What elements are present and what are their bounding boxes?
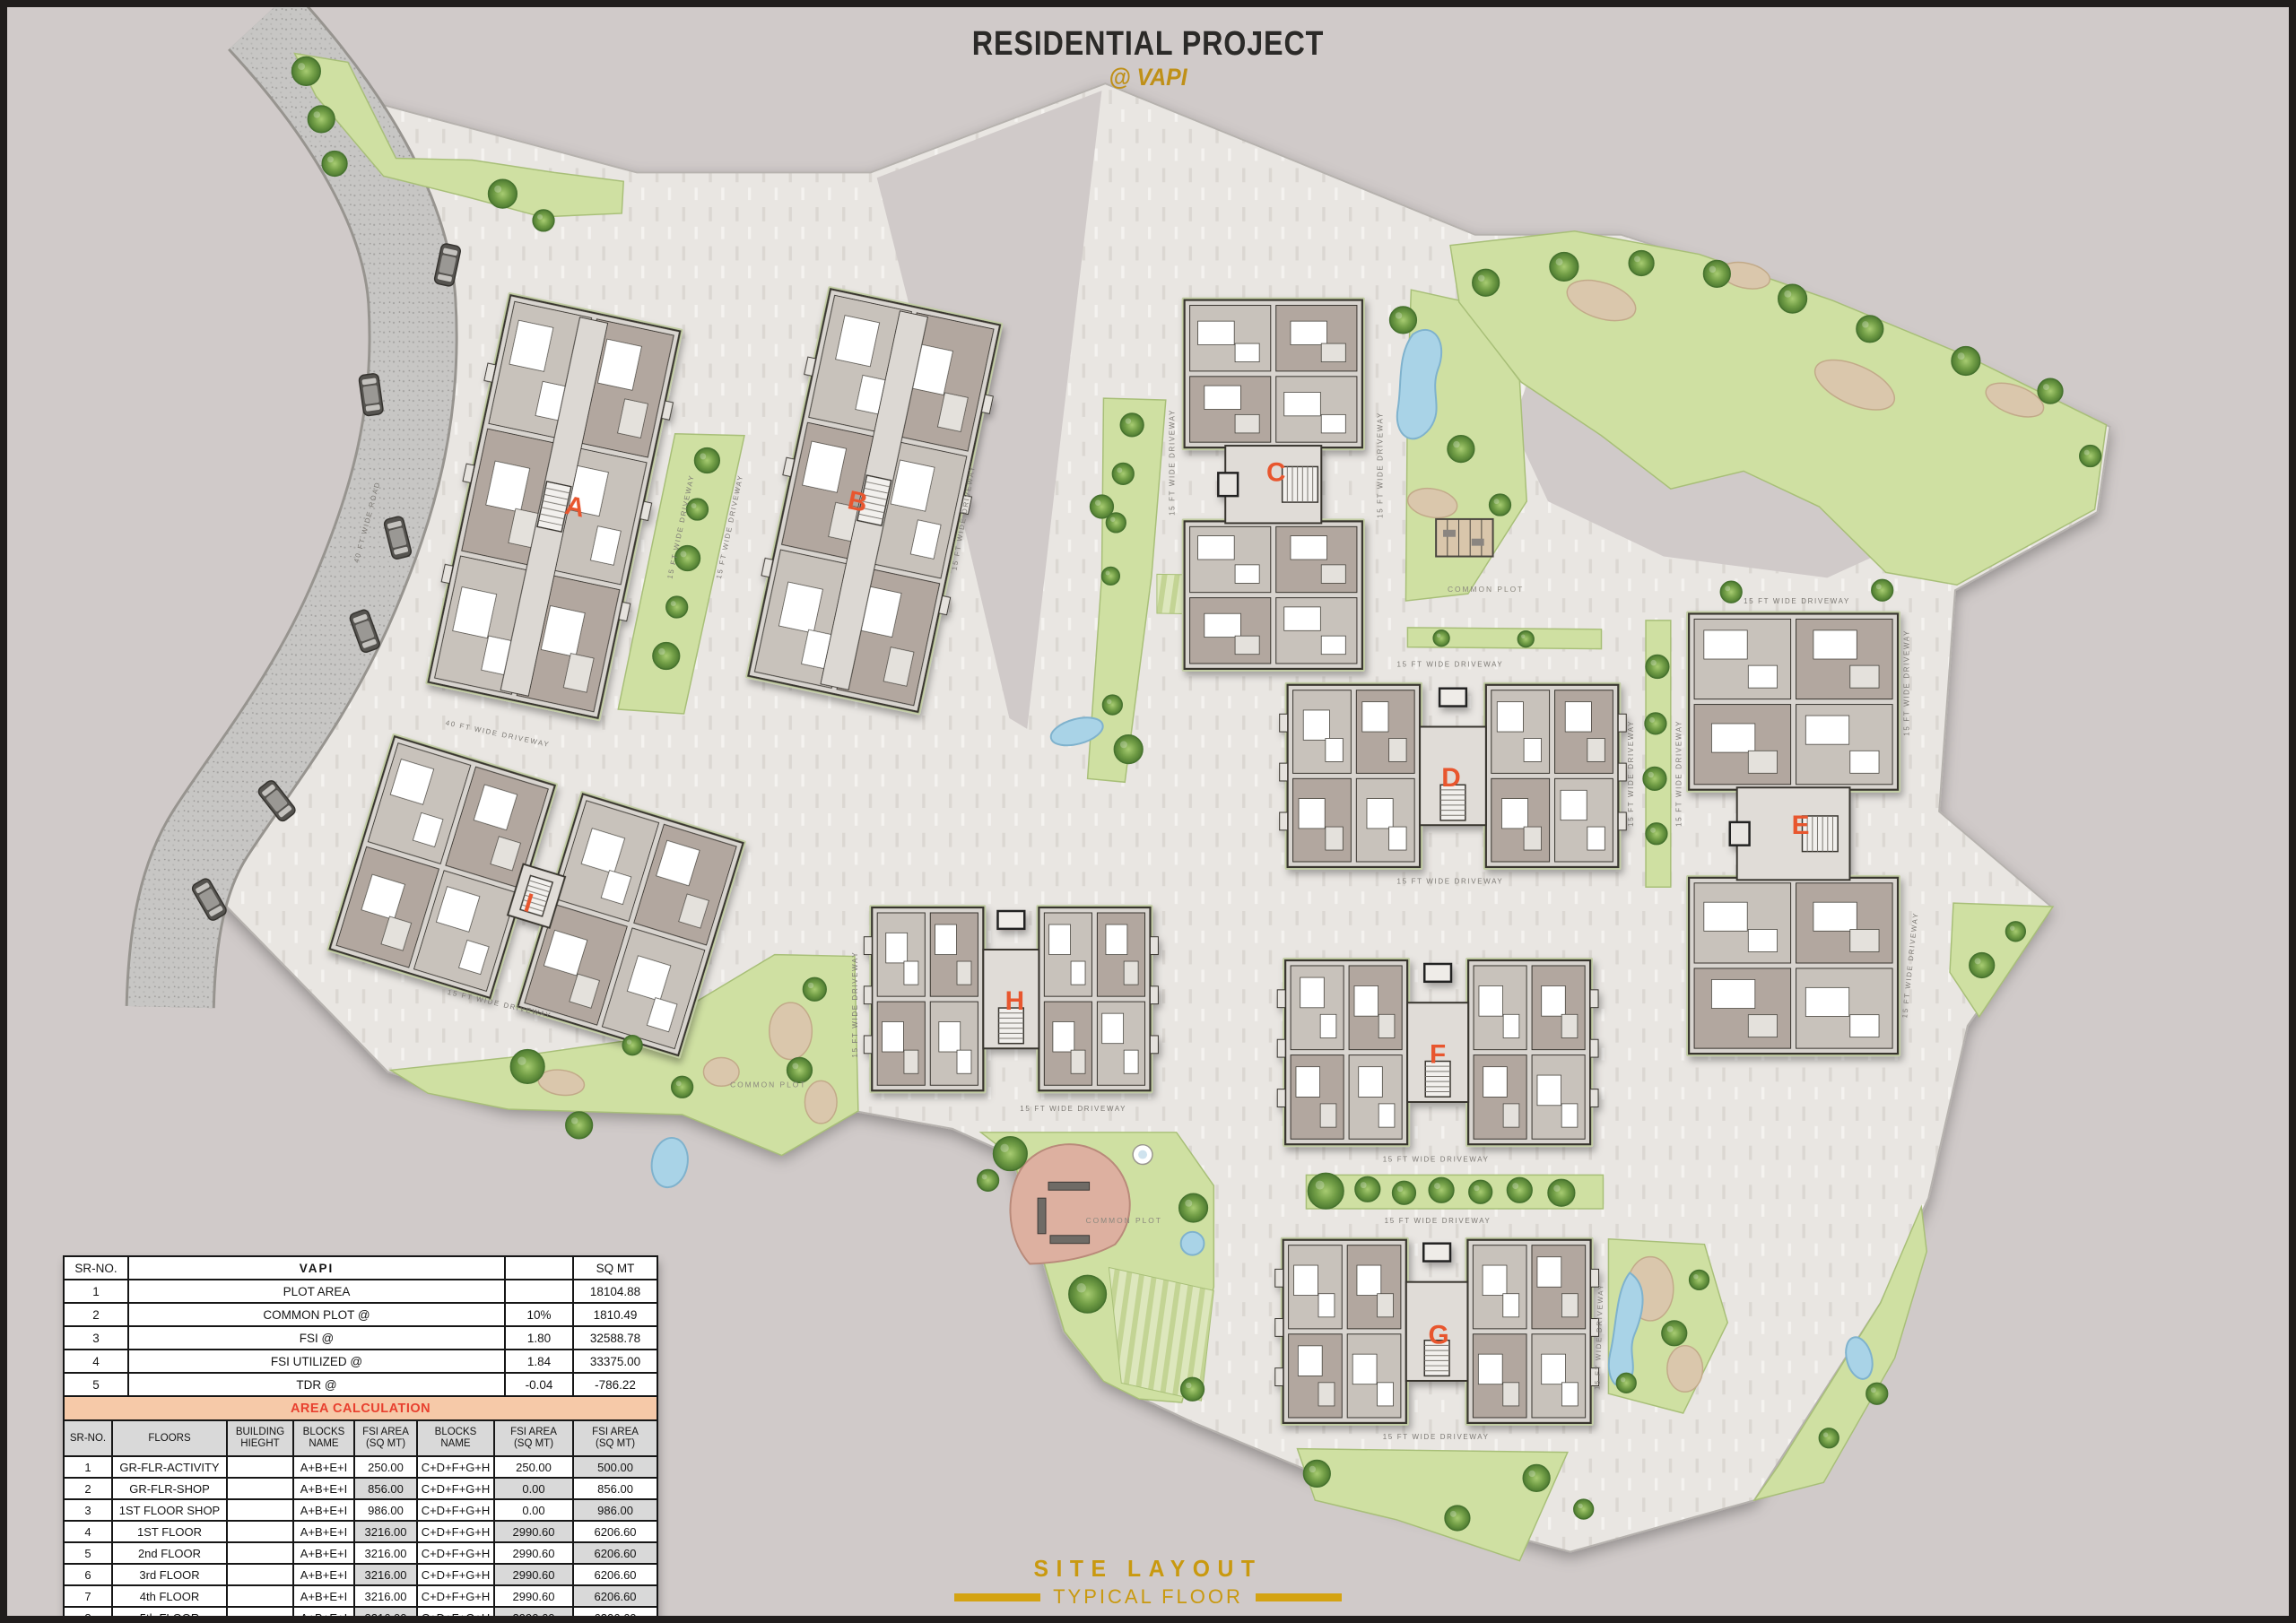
- area-row: 52nd FLOORA+B+E+I3216.00C+D+F+G+H2990.60…: [64, 1542, 657, 1564]
- tree-icon: [1548, 1179, 1575, 1206]
- tree-icon: [1720, 581, 1742, 603]
- tree-icon: [566, 1112, 593, 1139]
- area-blocks2: C+D+F+G+H: [417, 1585, 494, 1607]
- area-height: [227, 1542, 293, 1564]
- area-floor: 1ST FLOOR SHOP: [112, 1499, 227, 1521]
- area-sr: 6: [64, 1564, 112, 1585]
- area-header-row: SR-NO.FLOORSBUILDINGHIEGHTBLOCKSNAMEFSI …: [64, 1420, 657, 1456]
- tree-icon: [1690, 1270, 1709, 1289]
- summary-label: COMMON PLOT @: [128, 1303, 505, 1326]
- tree-icon: [1872, 579, 1893, 601]
- summary-header-city: VAPI: [128, 1256, 505, 1280]
- driveway-label: 15 FT WIDE DRIVEWAY: [1744, 597, 1850, 605]
- summary-row: 3FSI @1.8032588.78: [64, 1326, 657, 1350]
- summary-header-row: SR-NO.VAPISQ MT: [64, 1256, 657, 1280]
- summary-value: 33375.00: [573, 1350, 657, 1373]
- driveway-label: 15 FT WIDE DRIVEWAY: [1397, 877, 1504, 885]
- pool: [1181, 1232, 1205, 1255]
- tree-icon: [1112, 463, 1134, 484]
- tree-icon: [1952, 347, 1980, 376]
- area-blocks1: A+B+E+I: [293, 1585, 354, 1607]
- driveway-label: 15 FT WIDE DRIVEWAY: [1169, 409, 1177, 516]
- driveway-label: 15 FT WIDE DRIVEWAY: [1020, 1105, 1126, 1113]
- summary-value: 32588.78: [573, 1326, 657, 1350]
- tree-icon: [2080, 446, 2101, 467]
- summary-row: 2COMMON PLOT @10%1810.49: [64, 1303, 657, 1326]
- tree-icon: [1857, 316, 1883, 343]
- tree-icon: [1507, 1177, 1532, 1202]
- area-fsi-total: 6206.60: [573, 1585, 657, 1607]
- summary-sr: 3: [64, 1326, 128, 1350]
- gold-bar-right-icon: [1256, 1593, 1342, 1601]
- area-floor: 5th FLOOR: [112, 1607, 227, 1623]
- summary-row: 1PLOT AREA18104.88: [64, 1280, 657, 1303]
- summary-ratio: 1.80: [505, 1326, 573, 1350]
- area-blocks1: A+B+E+I: [293, 1478, 354, 1499]
- tree-icon: [1114, 735, 1143, 764]
- area-row: 2GR-FLR-SHOPA+B+E+I856.00C+D+F+G+H0.0085…: [64, 1478, 657, 1499]
- tree-icon: [1662, 1321, 1687, 1346]
- summary-header-blank: [505, 1256, 573, 1280]
- area-floor: 2nd FLOOR: [112, 1542, 227, 1564]
- tree-icon: [1393, 1181, 1416, 1204]
- tree-icon: [1616, 1373, 1636, 1393]
- area-sr: 3: [64, 1499, 112, 1521]
- tree-icon: [1574, 1499, 1594, 1519]
- area-fsi1: 250.00: [354, 1456, 417, 1478]
- area-blocks2: C+D+F+G+H: [417, 1521, 494, 1542]
- tree-icon: [1303, 1461, 1330, 1488]
- summary-sr: 2: [64, 1303, 128, 1326]
- fountain-water: [1138, 1150, 1147, 1159]
- area-fsi2: 0.00: [494, 1478, 573, 1499]
- page-subtitle: @ VAPI: [99, 64, 2197, 91]
- sand-patch: [1667, 1346, 1703, 1393]
- area-blocks2: C+D+F+G+H: [417, 1499, 494, 1521]
- tree-icon: [1469, 1180, 1492, 1203]
- tree-icon: [1970, 953, 1995, 978]
- tree-icon: [803, 977, 826, 1001]
- tree-icon: [2038, 378, 2063, 404]
- area-blocks2: C+D+F+G+H: [417, 1478, 494, 1499]
- summary-value: -786.22: [573, 1373, 657, 1396]
- green-area: [1298, 1449, 1568, 1561]
- summary-table: SR-NO.VAPISQ MT1PLOT AREA18104.882COMMON…: [63, 1255, 658, 1397]
- tree-icon: [1646, 655, 1669, 679]
- tree-icon: [1819, 1428, 1839, 1448]
- common-plot-label: COMMON PLOT: [1448, 585, 1524, 594]
- driveway-label: 15 FT WIDE DRIVEWAY: [1627, 720, 1635, 827]
- common-plot-label: COMMON PLOT: [730, 1080, 806, 1089]
- tree-icon: [622, 1036, 642, 1055]
- tree-icon: [787, 1058, 813, 1083]
- tree-icon: [510, 1050, 544, 1084]
- tree-icon: [1101, 567, 1119, 585]
- summary-label: FSI @: [128, 1326, 505, 1350]
- area-floor: 1ST FLOOR: [112, 1521, 227, 1542]
- area-blocks1: A+B+E+I: [293, 1521, 354, 1542]
- tree-icon: [1179, 1193, 1208, 1222]
- tree-icon: [1518, 631, 1534, 647]
- building-label-D: D: [1441, 763, 1460, 793]
- tree-icon: [2005, 922, 2025, 942]
- area-fsi-total: 6206.60: [573, 1564, 657, 1585]
- area-blocks2: C+D+F+G+H: [417, 1564, 494, 1585]
- area-fsi1: 3216.00: [354, 1521, 417, 1542]
- summary-value: 18104.88: [573, 1280, 657, 1303]
- area-sr: 8: [64, 1607, 112, 1623]
- summary-sr: 1: [64, 1280, 128, 1303]
- area-sr: 5: [64, 1542, 112, 1564]
- tree-icon: [1646, 823, 1667, 845]
- title-block: RESIDENTIAL PROJECT @ VAPI: [7, 25, 2289, 91]
- tree-icon: [1645, 713, 1666, 734]
- area-blocks1: A+B+E+I: [293, 1607, 354, 1623]
- area-row: 41ST FLOORA+B+E+I3216.00C+D+F+G+H2990.60…: [64, 1521, 657, 1542]
- footer-subtitle: TYPICAL FLOOR: [1053, 1585, 1243, 1609]
- sand-patch: [770, 1002, 813, 1059]
- area-fsi1: 3216.00: [354, 1542, 417, 1564]
- building-label-F: F: [1430, 1039, 1446, 1069]
- tree-icon: [1091, 495, 1114, 518]
- tree-icon: [322, 152, 347, 177]
- area-sr: 1: [64, 1456, 112, 1478]
- area-fsi-total: 500.00: [573, 1456, 657, 1478]
- summary-sr: 4: [64, 1350, 128, 1373]
- area-height: [227, 1585, 293, 1607]
- area-fsi2: 2990.60: [494, 1542, 573, 1564]
- area-fsi1: 3216.00: [354, 1564, 417, 1585]
- summary-ratio: -0.04: [505, 1373, 573, 1396]
- area-height: [227, 1478, 293, 1499]
- tree-icon: [1390, 307, 1417, 334]
- tree-icon: [1433, 630, 1449, 647]
- area-column-header: FSI AREA(SQ MT): [354, 1420, 417, 1456]
- area-height: [227, 1521, 293, 1542]
- summary-value: 1810.49: [573, 1303, 657, 1326]
- building-label-H: H: [1005, 986, 1024, 1016]
- tree-icon: [1866, 1383, 1888, 1404]
- summary-row: 4FSI UTILIZED @1.8433375.00: [64, 1350, 657, 1373]
- driveway-label: 15 FT WIDE DRIVEWAY: [1397, 660, 1504, 668]
- area-section-title: AREA CALCULATION: [64, 1396, 657, 1420]
- area-height: [227, 1607, 293, 1623]
- driveway-label: 15 FT WIDE DRIVEWAY: [1383, 1156, 1490, 1164]
- area-tables: SR-NO.VAPISQ MT1PLOT AREA18104.882COMMON…: [63, 1257, 657, 1623]
- driveway-label: 15 FT WIDE DRIVEWAY: [851, 951, 859, 1058]
- area-blocks1: A+B+E+I: [293, 1564, 354, 1585]
- area-fsi1: 856.00: [354, 1478, 417, 1499]
- tree-icon: [1181, 1377, 1205, 1401]
- tree-icon: [1429, 1177, 1454, 1202]
- building-label-E: E: [1792, 811, 1810, 840]
- area-fsi1: 3216.00: [354, 1585, 417, 1607]
- driveway-label: 15 FT WIDE DRIVEWAY: [1385, 1217, 1492, 1225]
- area-calculation-table: AREA CALCULATIONSR-NO.FLOORSBUILDINGHIEG…: [63, 1395, 658, 1623]
- gold-bar-left-icon: [954, 1593, 1040, 1601]
- area-floor: 3rd FLOOR: [112, 1564, 227, 1585]
- area-fsi-total: 6206.60: [573, 1521, 657, 1542]
- tree-icon: [1308, 1173, 1344, 1209]
- tree-icon: [1643, 767, 1666, 790]
- summary-sr: 5: [64, 1373, 128, 1396]
- area-sr: 7: [64, 1585, 112, 1607]
- area-height: [227, 1456, 293, 1478]
- driveway-label: 15 FT WIDE DRIVEWAY: [1383, 1433, 1490, 1441]
- plaza-common-plot: [1010, 1144, 1129, 1263]
- tree-icon: [672, 1076, 693, 1098]
- area-column-header: FSI AREA(SQ MT): [573, 1420, 657, 1456]
- common-plot-label: COMMON PLOT: [1086, 1216, 1162, 1225]
- tree-icon: [1779, 284, 1807, 313]
- area-row: 63rd FLOORA+B+E+I3216.00C+D+F+G+H2990.60…: [64, 1564, 657, 1585]
- page-title: RESIDENTIAL PROJECT: [178, 25, 2118, 64]
- pond: [648, 1135, 691, 1191]
- area-floor: GR-FLR-SHOP: [112, 1478, 227, 1499]
- area-blocks2: C+D+F+G+H: [417, 1542, 494, 1564]
- tree-icon: [666, 596, 688, 618]
- tree-icon: [1120, 413, 1144, 437]
- area-column-header: BLOCKSNAME: [417, 1420, 494, 1456]
- driveway-label: 15 FT WIDE DRIVEWAY: [1902, 629, 1910, 736]
- area-fsi2: 2990.60: [494, 1564, 573, 1585]
- sand-patch: [804, 1081, 837, 1124]
- area-fsi1: 986.00: [354, 1499, 417, 1521]
- tree-icon: [489, 179, 517, 208]
- summary-header-unit: SQ MT: [573, 1256, 657, 1280]
- tree-icon: [308, 106, 335, 133]
- area-row: 31ST FLOOR SHOPA+B+E+I986.00C+D+F+G+H0.0…: [64, 1499, 657, 1521]
- area-row: 1GR-FLR-ACTIVITYA+B+E+I250.00C+D+F+G+H25…: [64, 1456, 657, 1478]
- tree-icon: [695, 448, 720, 473]
- area-fsi2: 250.00: [494, 1456, 573, 1478]
- area-row: 74th FLOORA+B+E+I3216.00C+D+F+G+H2990.60…: [64, 1585, 657, 1607]
- tree-icon: [1629, 251, 1654, 276]
- area-floor: GR-FLR-ACTIVITY: [112, 1456, 227, 1478]
- tree-icon: [1550, 253, 1578, 282]
- tree-icon: [1523, 1465, 1550, 1492]
- building-label-C: C: [1266, 457, 1285, 487]
- area-sr: 2: [64, 1478, 112, 1499]
- area-section-title-row: AREA CALCULATION: [64, 1396, 657, 1420]
- area-fsi2: 0.00: [494, 1499, 573, 1521]
- area-column-header: FLOORS: [112, 1420, 227, 1456]
- summary-label: FSI UTILIZED @: [128, 1350, 505, 1373]
- tree-icon: [1102, 695, 1122, 715]
- area-height: [227, 1564, 293, 1585]
- area-column-header: BLOCKSNAME: [293, 1420, 354, 1456]
- summary-ratio: 10%: [505, 1303, 573, 1326]
- summary-label: PLOT AREA: [128, 1280, 505, 1303]
- area-row: 85th FLOORA+B+E+I3216.00C+D+F+G+H2990.60…: [64, 1607, 657, 1623]
- area-fsi-total: 856.00: [573, 1478, 657, 1499]
- area-fsi2: 2990.60: [494, 1585, 573, 1607]
- area-blocks1: A+B+E+I: [293, 1542, 354, 1564]
- area-fsi-total: 6206.60: [573, 1607, 657, 1623]
- area-column-header: FSI AREA(SQ MT): [494, 1420, 573, 1456]
- area-fsi-total: 6206.60: [573, 1542, 657, 1564]
- area-height: [227, 1499, 293, 1521]
- driveway-label: 15 FT WIDE DRIVEWAY: [1377, 412, 1385, 518]
- tree-icon: [1703, 260, 1730, 287]
- area-column-header: SR-NO.: [64, 1420, 112, 1456]
- building-label-G: G: [1429, 1321, 1449, 1350]
- area-fsi-total: 986.00: [573, 1499, 657, 1521]
- area-sr: 4: [64, 1521, 112, 1542]
- area-blocks1: A+B+E+I: [293, 1456, 354, 1478]
- tree-icon: [1448, 436, 1474, 463]
- area-fsi2: 2990.60: [494, 1521, 573, 1542]
- area-floor: 4th FLOOR: [112, 1585, 227, 1607]
- pergola-icon: [1436, 519, 1492, 557]
- area-blocks2: C+D+F+G+H: [417, 1456, 494, 1478]
- summary-label: TDR @: [128, 1373, 505, 1396]
- area-blocks2: C+D+F+G+H: [417, 1607, 494, 1623]
- area-fsi1: 3216.00: [354, 1607, 417, 1623]
- tree-icon: [1445, 1506, 1470, 1531]
- tree-icon: [994, 1137, 1028, 1171]
- area-blocks1: A+B+E+I: [293, 1499, 354, 1521]
- tree-icon: [1069, 1275, 1107, 1313]
- tree-icon: [1355, 1176, 1380, 1202]
- area-fsi2: 2990.60: [494, 1607, 573, 1623]
- tree-icon: [533, 210, 554, 231]
- area-column-header: BUILDINGHIEGHT: [227, 1420, 293, 1456]
- tree-icon: [1473, 269, 1500, 296]
- drawing-sheet: RESIDENTIAL PROJECT @ VAPI ABCDEFGHI40 F…: [0, 0, 2296, 1623]
- summary-row: 5TDR @-0.04-786.22: [64, 1373, 657, 1396]
- summary-header-sr: SR-NO.: [64, 1256, 128, 1280]
- summary-ratio: [505, 1280, 573, 1303]
- summary-ratio: 1.84: [505, 1350, 573, 1373]
- driveway-label: 15 FT WIDE DRIVEWAY: [1675, 720, 1683, 827]
- tree-icon: [653, 643, 680, 670]
- tree-icon: [1490, 494, 1511, 516]
- tree-icon: [978, 1169, 999, 1191]
